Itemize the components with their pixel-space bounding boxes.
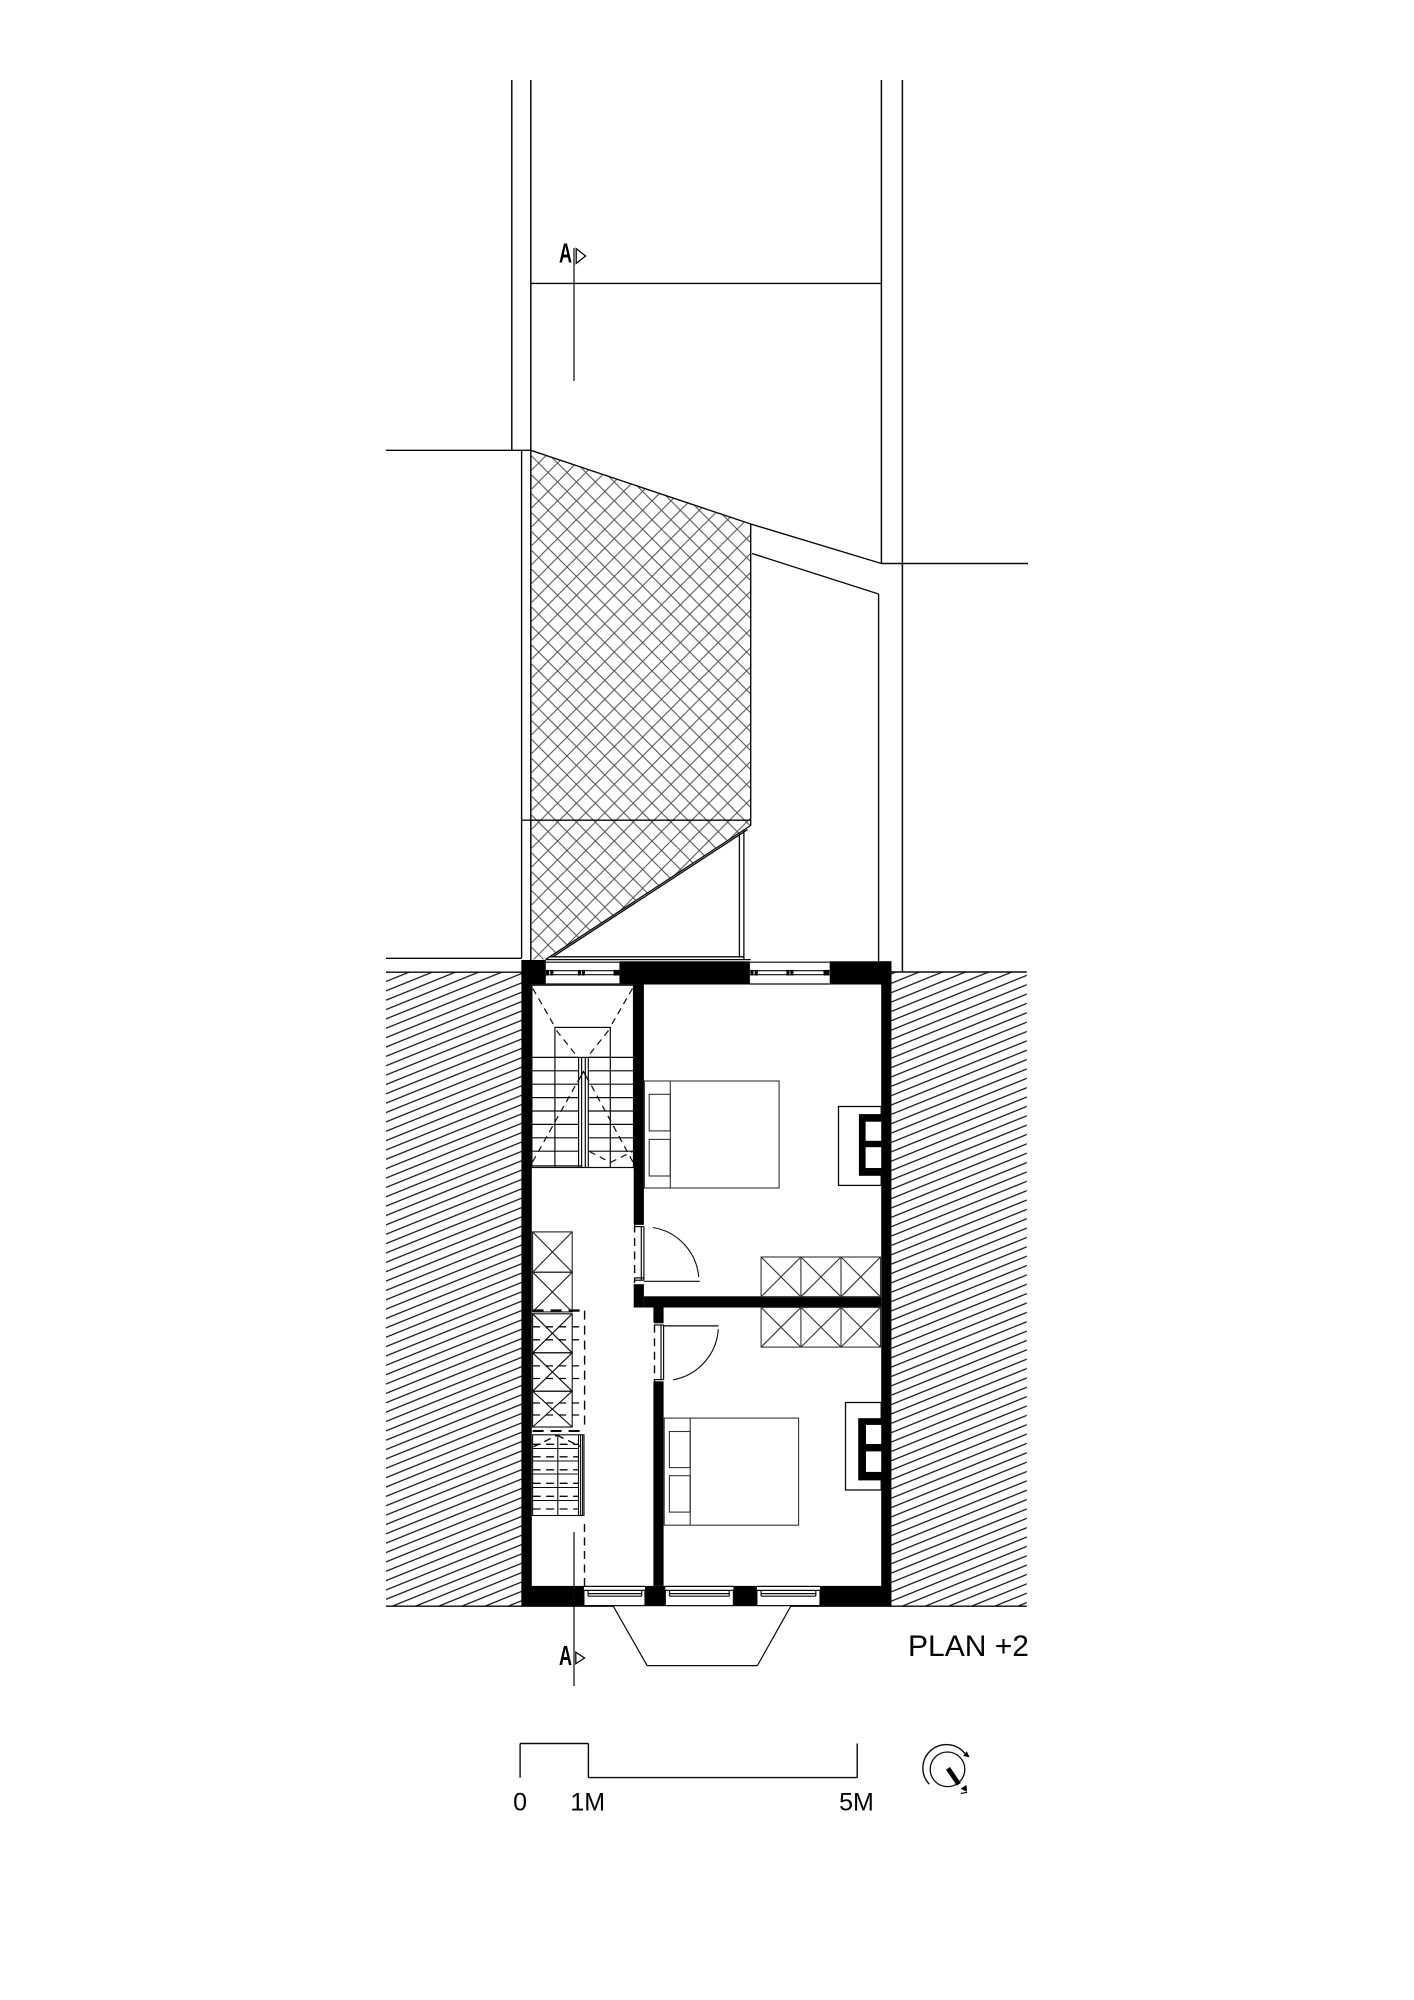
svg-text:PLAN +2: PLAN +2 — [908, 1630, 1029, 1663]
svg-text:5M: 5M — [839, 1788, 874, 1816]
svg-text:1M: 1M — [570, 1788, 605, 1816]
svg-text:A: A — [559, 238, 572, 269]
svg-text:0: 0 — [513, 1788, 527, 1816]
svg-text:A: A — [559, 1640, 572, 1671]
